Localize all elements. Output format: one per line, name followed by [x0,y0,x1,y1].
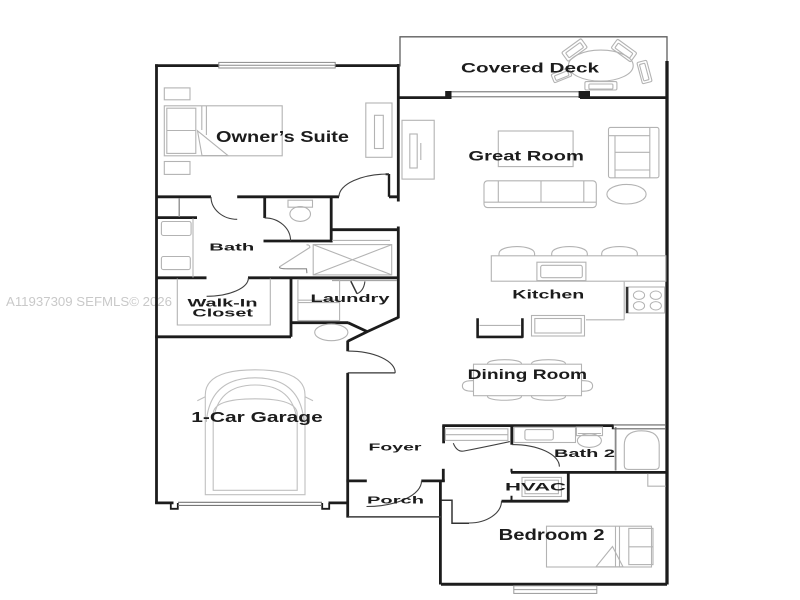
svg-text:Bath 2: Bath 2 [554,448,615,460]
svg-text:Dining Room: Dining Room [468,367,588,382]
svg-text:Closet: Closet [192,308,253,320]
svg-text:Great Room: Great Room [468,148,584,164]
svg-text:A11937309 SEFMLS© 2026: A11937309 SEFMLS© 2026 [6,294,172,309]
svg-text:Porch: Porch [367,495,424,507]
svg-text:Covered Deck: Covered Deck [461,59,599,75]
svg-text:1-Car Garage: 1-Car Garage [191,409,323,426]
svg-text:Laundry: Laundry [311,293,391,305]
svg-text:Foyer: Foyer [369,441,422,453]
svg-text:Kitchen: Kitchen [512,287,584,301]
svg-text:HVAC: HVAC [505,481,566,493]
svg-text:Owner’s Suite: Owner’s Suite [216,129,349,146]
svg-text:Bath: Bath [209,242,254,254]
svg-text:Bedroom 2: Bedroom 2 [499,527,605,544]
